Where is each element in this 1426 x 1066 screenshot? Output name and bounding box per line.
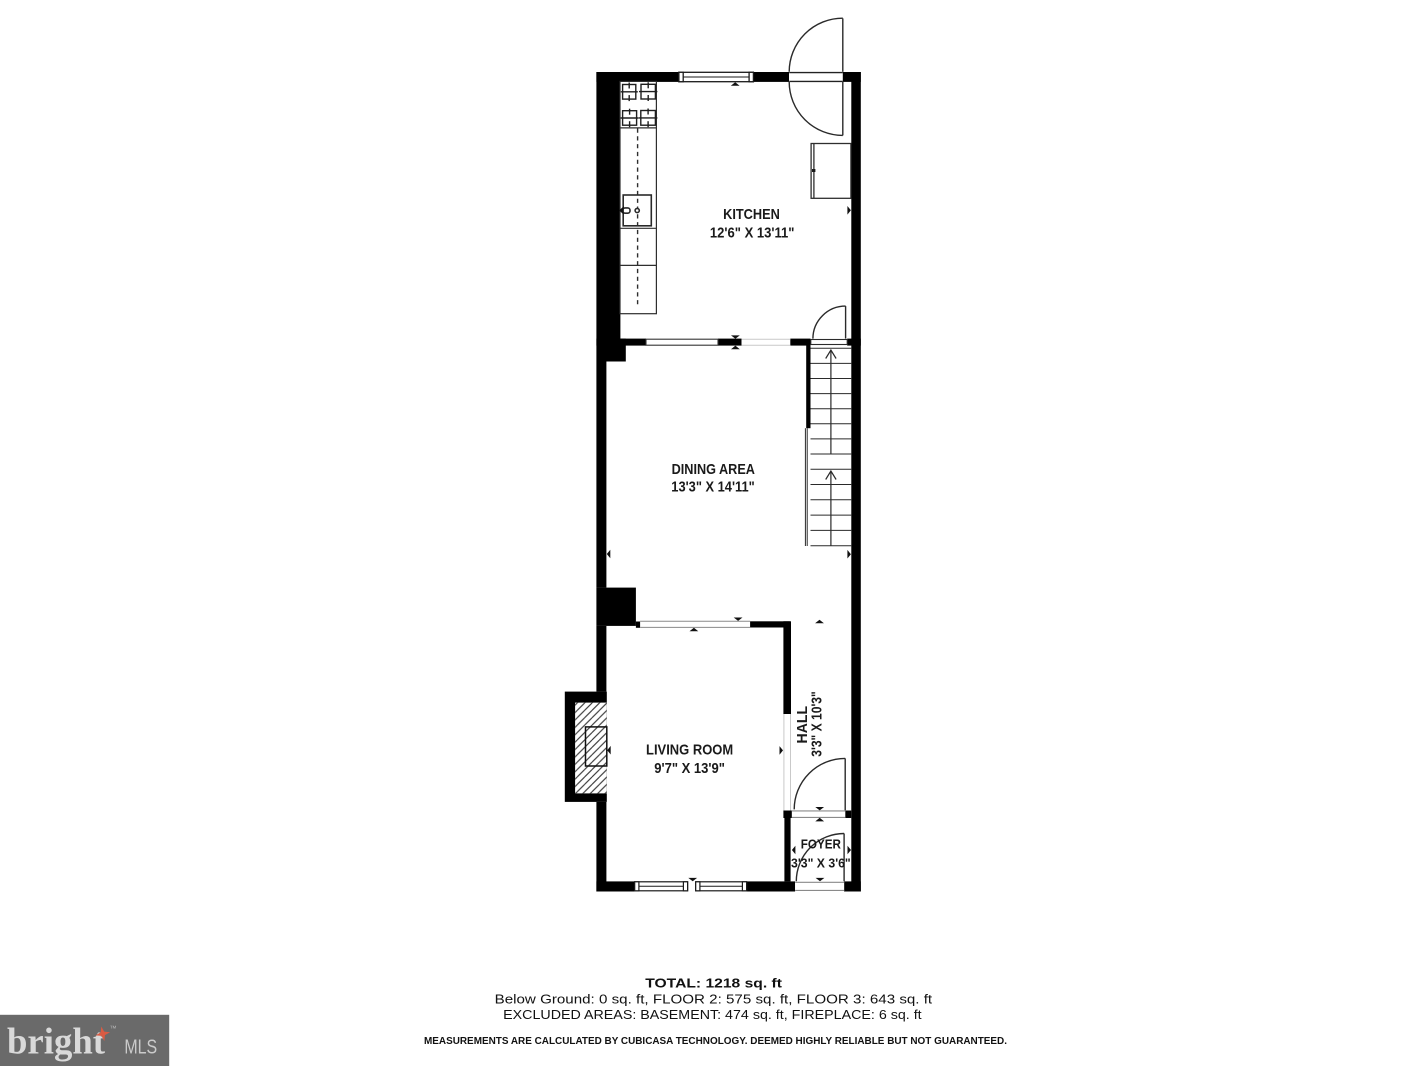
svg-text:LIVING ROOM: LIVING ROOM: [646, 742, 733, 759]
svg-text:FOYER: FOYER: [801, 837, 842, 852]
svg-text:EXCLUDED AREAS: BASEMENT: 474: EXCLUDED AREAS: BASEMENT: 474 sq. ft, FI…: [503, 1007, 922, 1022]
svg-text:MLS: MLS: [124, 1036, 157, 1059]
svg-text:3'3" X 3'6": 3'3" X 3'6": [791, 855, 851, 870]
svg-text:KITCHEN: KITCHEN: [723, 206, 780, 223]
svg-text:13'3" X 14'11": 13'3" X 14'11": [671, 479, 754, 496]
svg-text:9'7" X 13'9": 9'7" X 13'9": [654, 760, 725, 777]
svg-text:bright: bright: [7, 1022, 106, 1063]
svg-text:MEASUREMENTS ARE CALCULATED BY: MEASUREMENTS ARE CALCULATED BY CUBICASA …: [424, 1036, 1007, 1047]
svg-text:3'3" X 10'3": 3'3" X 10'3": [809, 691, 826, 757]
svg-text:12'6" X 13'11": 12'6" X 13'11": [710, 224, 795, 241]
svg-text:™: ™: [110, 1026, 117, 1033]
svg-text:DINING AREA: DINING AREA: [672, 461, 755, 478]
svg-text:Below Ground: 0 sq. ft, FLOOR: Below Ground: 0 sq. ft, FLOOR 2: 575 sq.…: [495, 992, 933, 1007]
svg-text:TOTAL: 1218 sq. ft: TOTAL: 1218 sq. ft: [645, 976, 782, 991]
